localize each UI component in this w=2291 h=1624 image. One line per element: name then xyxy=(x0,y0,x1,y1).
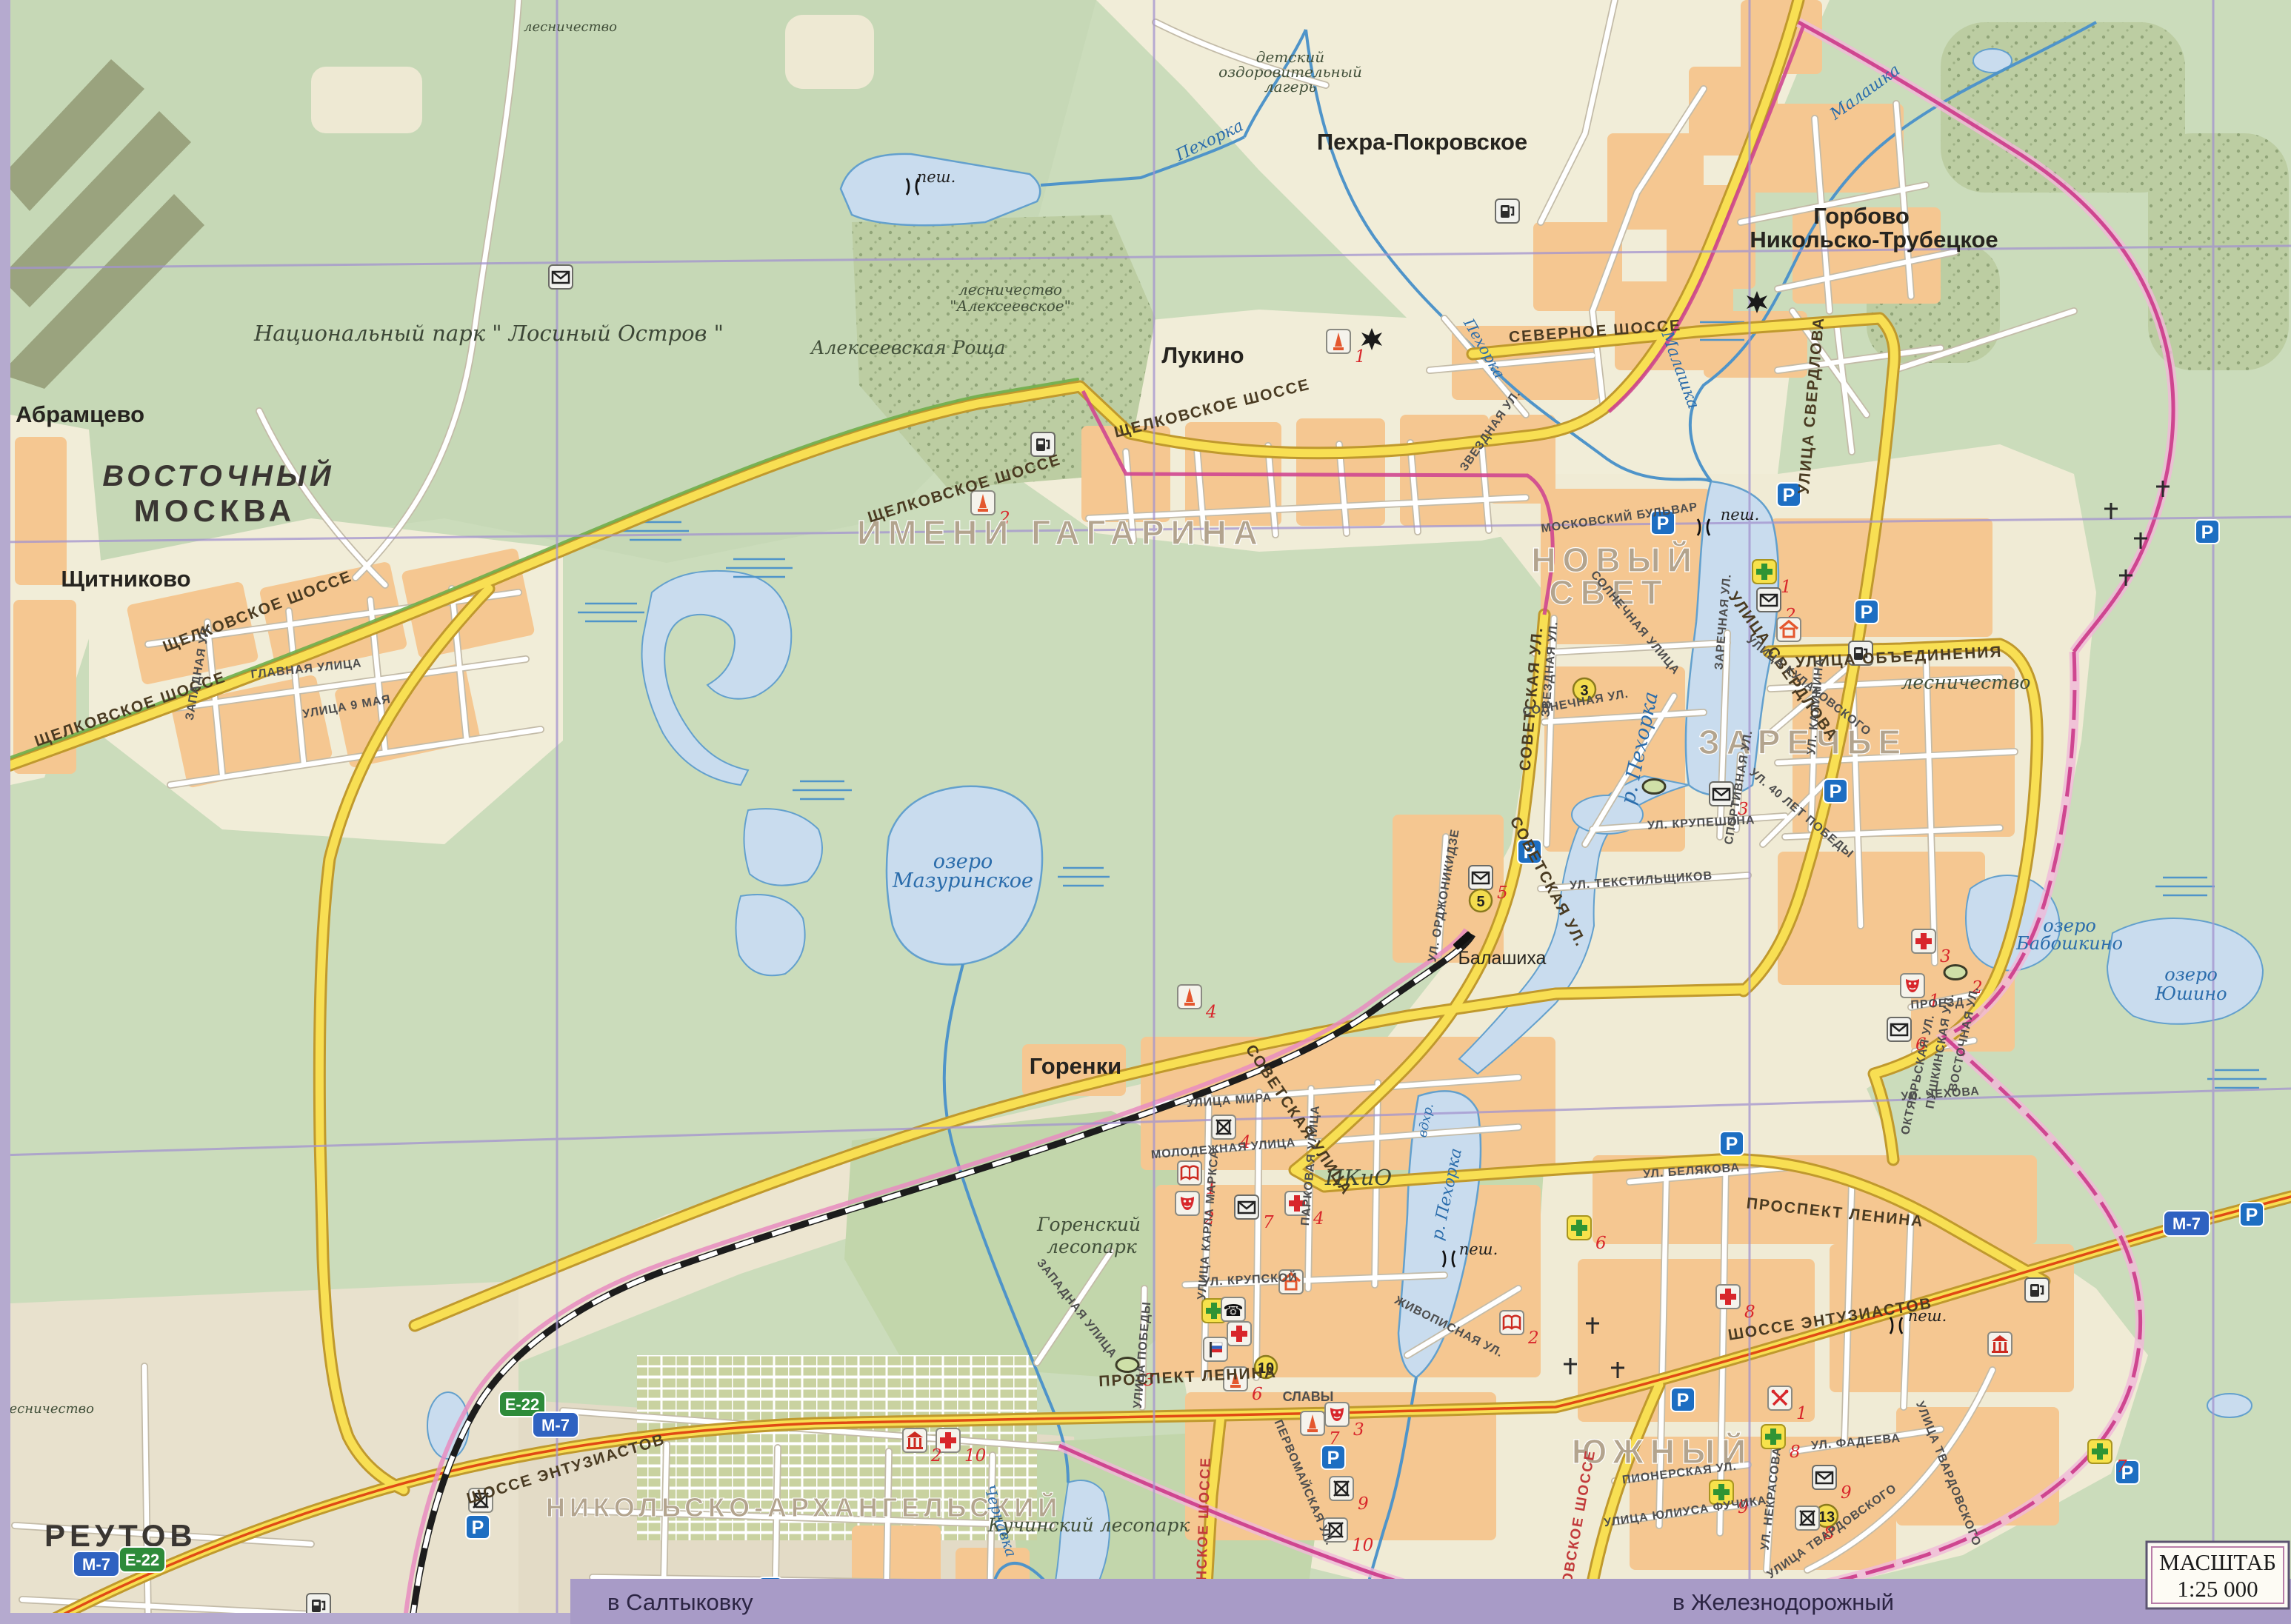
map-label: МОСКВА xyxy=(134,493,296,528)
med-icon xyxy=(1227,1322,1251,1346)
forest-clearing xyxy=(785,15,874,89)
library-icon xyxy=(1178,1161,1201,1185)
map-label: лесничество xyxy=(958,281,1062,298)
parking-icon xyxy=(2195,520,2219,544)
map-label: лагерь xyxy=(1264,78,1316,96)
library-icon xyxy=(1500,1311,1524,1334)
poi-number: 1 xyxy=(1781,578,1792,597)
poi-number: 7 xyxy=(2116,1457,2127,1477)
parking-icon xyxy=(2240,1203,2264,1226)
poi-number: 4 xyxy=(1205,1003,1217,1022)
route-badge: М-7 xyxy=(533,1412,578,1437)
pharm-icon xyxy=(1567,1216,1591,1240)
poi-number: 1 xyxy=(1355,347,1366,367)
theater-icon xyxy=(1325,1403,1349,1426)
parking-icon xyxy=(466,1515,490,1539)
map-label: "Алексеевское" xyxy=(950,297,1071,315)
pond-west2 xyxy=(736,895,804,975)
map-label: Абрамцево xyxy=(16,401,144,427)
ban-icon xyxy=(1795,1506,1819,1530)
map-label: ИМЕНИ ГАГАРИНА xyxy=(857,513,1264,552)
post-icon xyxy=(1469,866,1493,889)
map-label: лесничество xyxy=(524,19,617,35)
stadium-icon xyxy=(1643,780,1665,794)
map-label: пеш. xyxy=(1459,1240,1498,1258)
map-label: СЛАВЫ xyxy=(1283,1389,1334,1404)
scale-value: 1:25 000 xyxy=(2177,1576,2258,1602)
route-badge: Е-22 xyxy=(119,1547,165,1572)
museum-icon xyxy=(903,1428,927,1452)
map-label: пеш. xyxy=(1721,506,1760,524)
forest-ne xyxy=(2148,133,2289,370)
poi-number: 2 xyxy=(930,1446,942,1466)
map-label: Никольско-Трубецкое xyxy=(1750,227,1998,253)
monument-icon xyxy=(1327,330,1350,353)
pharm-icon xyxy=(1761,1425,1785,1448)
route-badge: М-7 xyxy=(2164,1211,2210,1236)
map-label: Горенский xyxy=(1036,1214,1141,1235)
map-label: Горенки xyxy=(1030,1053,1121,1079)
map-label: Алексеевская Роща xyxy=(810,337,1006,358)
poi-number: 9 xyxy=(1358,1494,1369,1514)
poi-number: 7 xyxy=(1263,1213,1274,1232)
map-label: Щитниково xyxy=(61,566,190,592)
theater-icon xyxy=(1175,1192,1199,1215)
route-badge-label: Е-22 xyxy=(505,1395,539,1414)
map-label: лесопарк xyxy=(1047,1236,1137,1257)
map-label: лесничество xyxy=(1,1401,94,1417)
pharm-icon xyxy=(1753,560,1776,584)
post-icon xyxy=(1235,1195,1258,1219)
poi-number: 3 xyxy=(1940,947,1951,966)
post-icon xyxy=(1813,1466,1836,1489)
map-label: Горбово xyxy=(1813,203,1910,229)
scale-title: МАСШТАБ xyxy=(2159,1549,2276,1575)
poi-number: 7 xyxy=(1329,1429,1340,1448)
parking-icon xyxy=(1855,600,1878,624)
left-edge-strip xyxy=(0,0,10,1624)
map-label: Национальный парк " Лосиный Остров " xyxy=(253,321,724,346)
map-label: Пехра-Покровское xyxy=(1317,129,1527,155)
restaurant-icon xyxy=(1768,1386,1792,1410)
route-badge-label: М-7 xyxy=(541,1416,570,1434)
poi-number: 4 xyxy=(1313,1209,1324,1229)
gas-icon xyxy=(2025,1278,2049,1302)
poi-number: 5 xyxy=(1497,883,1508,903)
forest-clearing xyxy=(311,67,422,133)
poi-number: 6 xyxy=(1252,1385,1263,1404)
stadium-icon xyxy=(1944,966,1967,980)
parking-icon xyxy=(1720,1132,1744,1155)
poi-number: 9 xyxy=(1841,1483,1852,1503)
monument-icon xyxy=(1178,985,1201,1009)
route-badge-label: Е-22 xyxy=(125,1551,159,1569)
poi-number: 8 xyxy=(1790,1443,1801,1462)
post-icon xyxy=(1887,1017,1911,1041)
bottom-band xyxy=(570,1579,2291,1624)
ban-icon xyxy=(1212,1115,1235,1139)
map-label: ЗАРЕЧЬЕ xyxy=(1698,723,1907,761)
theater-icon xyxy=(1901,974,1924,998)
map-label: Бабошкино xyxy=(2015,933,2123,954)
map-label: пеш. xyxy=(1908,1307,1947,1325)
scale-box: МАСШТАБ 1:25 000 xyxy=(2147,1542,2289,1608)
museum-icon xyxy=(1988,1332,2012,1356)
map-label: ВОСТОЧНЫЙ xyxy=(102,458,334,492)
parking-icon xyxy=(1824,779,1847,803)
post-icon xyxy=(1757,588,1781,612)
phone-icon xyxy=(1221,1297,1245,1321)
map-viewport: P xyxy=(0,0,2291,1624)
poi-number: 3 xyxy=(1353,1420,1364,1440)
parking-icon xyxy=(1321,1446,1345,1469)
post-icon xyxy=(549,265,573,289)
poi-number: 6 xyxy=(1595,1234,1607,1253)
ban-icon xyxy=(1330,1477,1353,1500)
poi-number: 10 xyxy=(1352,1536,1373,1555)
poi-number: 10 xyxy=(964,1446,986,1466)
monument-icon xyxy=(971,491,995,515)
map-label: Мазуринское xyxy=(892,869,1033,892)
map-label: Балашиха xyxy=(1458,948,1547,969)
map-label: озеро xyxy=(2164,964,2218,985)
med-icon xyxy=(1716,1285,1740,1309)
route-badge: М-7 xyxy=(73,1551,119,1577)
parking-icon xyxy=(1671,1388,1695,1411)
route-badge-label: М-7 xyxy=(82,1555,110,1574)
map-label: Лукино xyxy=(1161,342,1244,368)
flag-icon xyxy=(1204,1337,1227,1361)
pharm-icon xyxy=(2088,1440,2112,1463)
poi-number: 1 xyxy=(1796,1404,1807,1423)
hotel-icon xyxy=(1777,618,1801,641)
monument-icon xyxy=(1301,1411,1324,1435)
gas-icon xyxy=(1495,199,1519,223)
map-label: лесничество xyxy=(1901,672,2031,693)
bottom-band-left xyxy=(10,1613,570,1624)
map-label: пеш. xyxy=(917,168,956,186)
forest-ne xyxy=(1941,22,2185,193)
map-label: Кучинский лесопарк xyxy=(987,1514,1190,1536)
edge-note-zheleznodorozhny: в Железнодорожный xyxy=(1673,1589,1894,1615)
route-badge-label: М-7 xyxy=(2172,1214,2201,1233)
edge-note-saltykovka: в Салтыковку xyxy=(607,1589,753,1615)
map-label: Юшино xyxy=(2154,983,2227,1004)
map-label: РЕУТОВ xyxy=(44,1518,197,1553)
poi-number: 8 xyxy=(1744,1303,1755,1322)
poi-number: 5 xyxy=(1476,894,1484,910)
med-icon xyxy=(1912,929,1935,953)
poi-number: 2 xyxy=(1527,1329,1539,1348)
city-map-svg: P xyxy=(0,0,2291,1624)
